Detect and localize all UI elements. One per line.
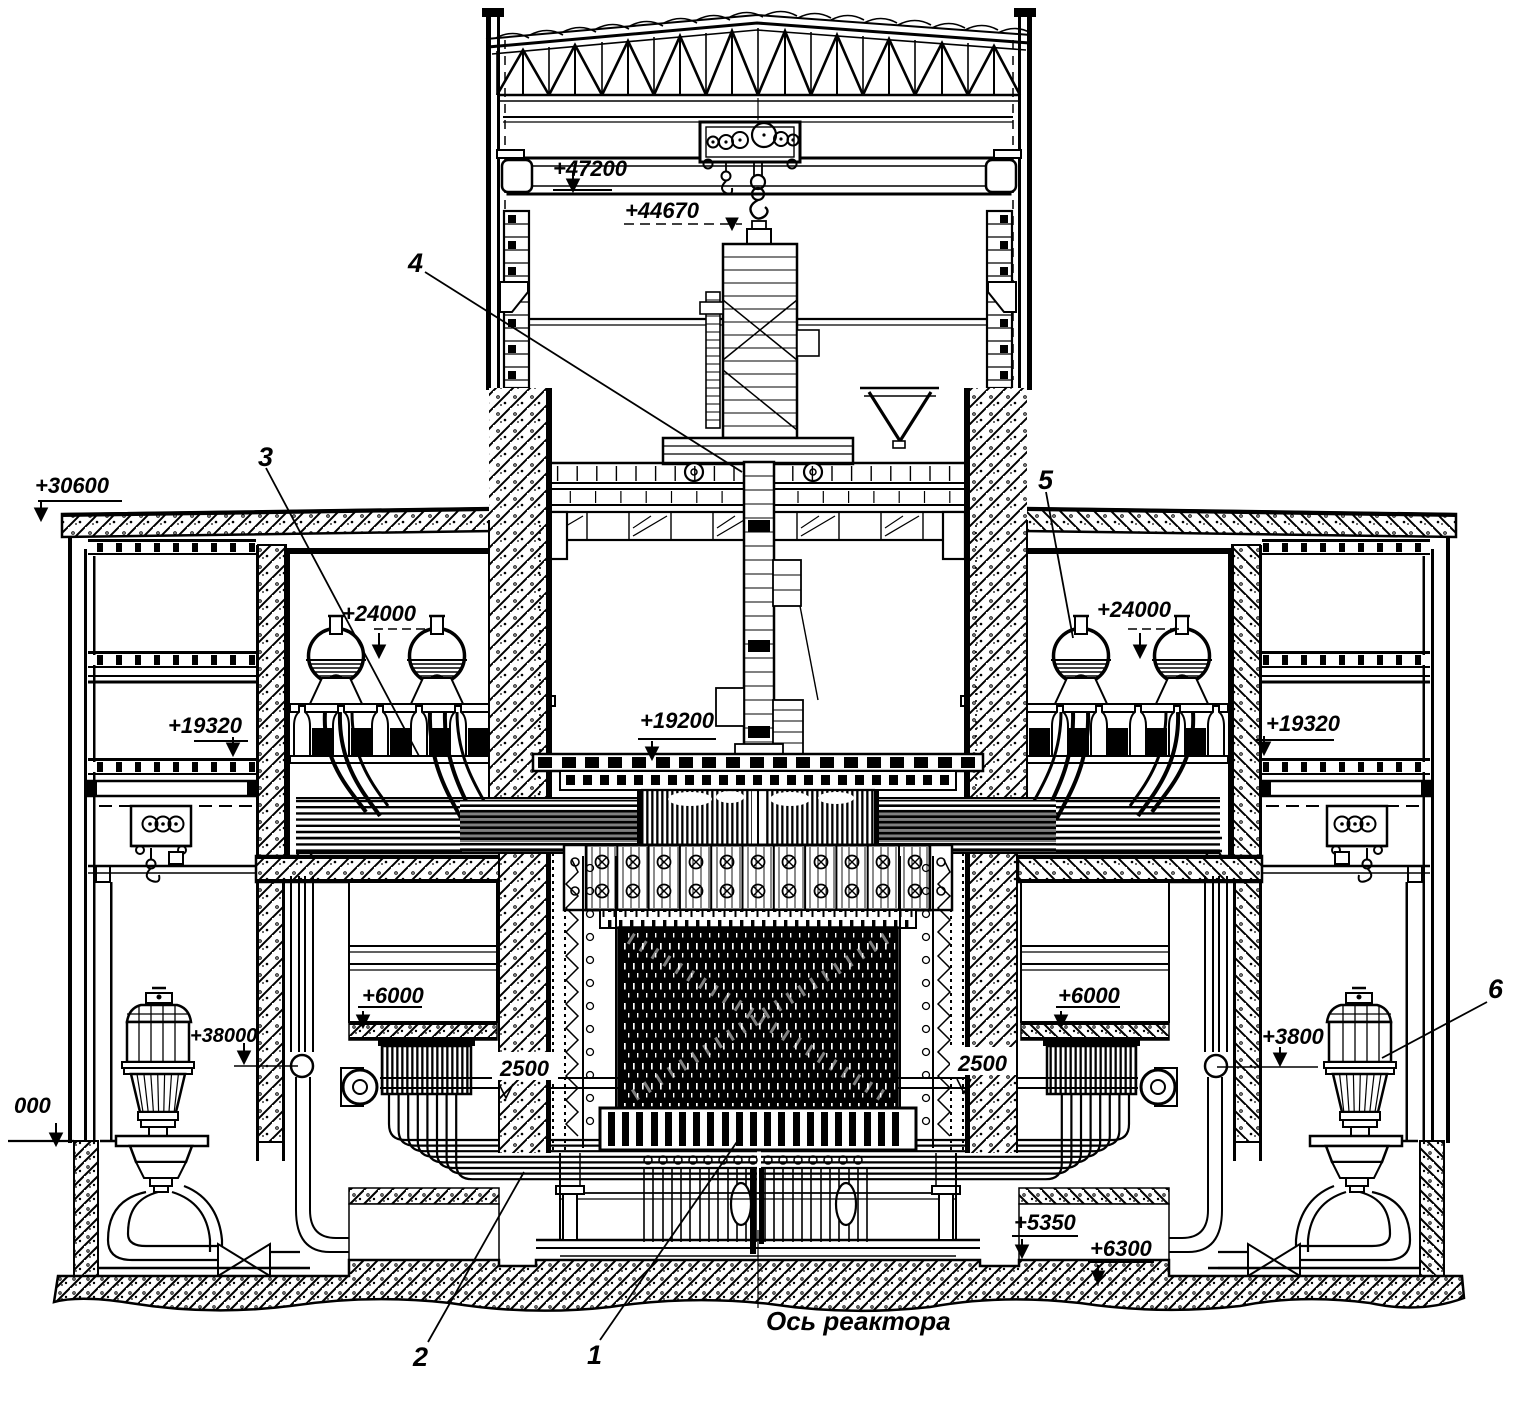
svg-text:2500: 2500 (957, 1051, 1008, 1076)
svg-text:2: 2 (412, 1342, 428, 1372)
svg-text:+24000: +24000 (342, 601, 417, 626)
svg-text:5: 5 (1038, 465, 1054, 495)
svg-text:+19320: +19320 (168, 713, 243, 738)
svg-text:4: 4 (407, 248, 423, 278)
svg-text:2500: 2500 (499, 1056, 550, 1081)
svg-text:+44670: +44670 (625, 198, 700, 223)
svg-text:+3800: +3800 (1262, 1024, 1325, 1049)
svg-text:000: 000 (14, 1093, 51, 1118)
svg-text:+24000: +24000 (1097, 597, 1172, 622)
svg-text:+19200: +19200 (640, 708, 715, 733)
svg-text:+38000: +38000 (190, 1025, 257, 1047)
svg-text:+47200: +47200 (553, 156, 628, 181)
svg-text:Ось реактора: Ось реактора (766, 1306, 951, 1336)
svg-text:+6000: +6000 (362, 983, 425, 1008)
svg-text:+6300: +6300 (1090, 1236, 1153, 1261)
svg-text:+19320: +19320 (1266, 711, 1341, 736)
svg-text:+6000: +6000 (1058, 983, 1121, 1008)
svg-text:+30600: +30600 (35, 473, 110, 498)
svg-text:+5350: +5350 (1014, 1210, 1077, 1235)
svg-text:6: 6 (1488, 974, 1504, 1004)
svg-text:3: 3 (258, 442, 273, 472)
svg-text:1: 1 (587, 1340, 602, 1370)
